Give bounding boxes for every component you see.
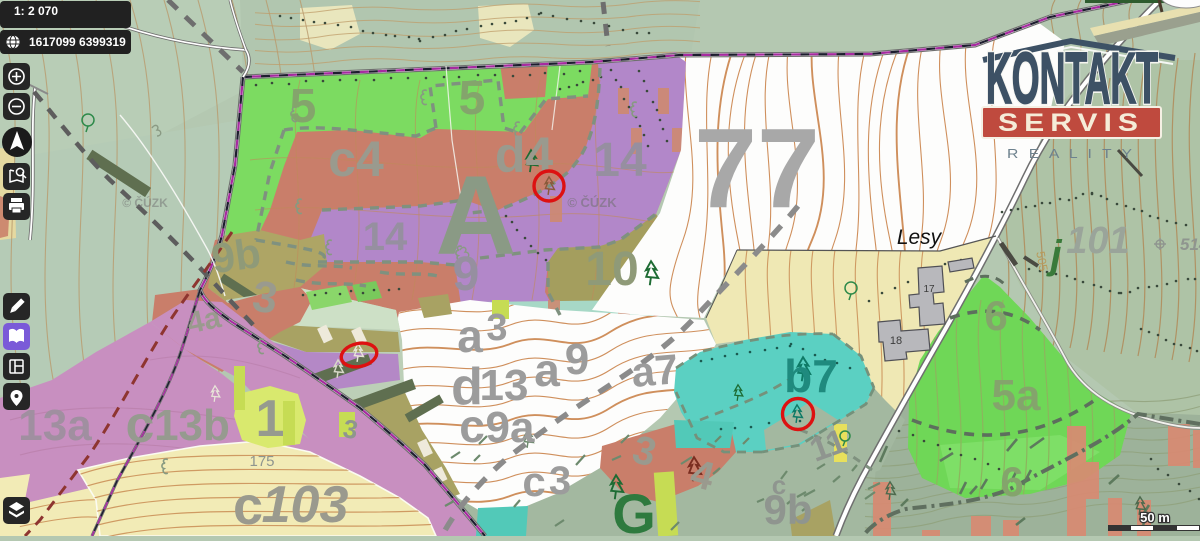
svg-text:13a: 13a: [18, 401, 92, 450]
svg-text:4a: 4a: [184, 301, 224, 340]
svg-text:c4: c4: [328, 131, 384, 187]
svg-text:© ČÚZK: © ČÚZK: [567, 195, 617, 210]
svg-text:1: 1: [256, 390, 285, 448]
svg-text:9: 9: [565, 335, 589, 384]
svg-text:© ČÚZK: © ČÚZK: [122, 195, 168, 210]
svg-text:514: 514: [1180, 235, 1200, 254]
svg-text:Lesy: Lesy: [897, 226, 943, 249]
svg-text:6: 6: [984, 292, 1007, 339]
svg-text:1617099 6399319: 1617099 6399319: [29, 35, 126, 49]
svg-text:c: c: [459, 400, 485, 452]
svg-text:103: 103: [262, 476, 349, 534]
svg-text:13b: 13b: [154, 401, 230, 450]
svg-text:6: 6: [1000, 458, 1023, 505]
svg-text:14: 14: [363, 215, 408, 259]
svg-text:18: 18: [890, 335, 902, 347]
svg-text:a: a: [534, 344, 560, 396]
svg-text:9b: 9b: [763, 486, 812, 533]
svg-text:a: a: [457, 310, 483, 362]
svg-text:R E A L I T Y: R E A L I T Y: [1007, 146, 1135, 161]
svg-text:77: 77: [694, 105, 820, 231]
svg-text:10: 10: [585, 243, 638, 296]
svg-text:a7: a7: [629, 345, 680, 396]
svg-text:175: 175: [249, 453, 274, 470]
svg-text:G: G: [612, 482, 656, 536]
svg-text:5: 5: [459, 72, 486, 125]
svg-text:14: 14: [593, 134, 647, 187]
svg-text:50 m: 50 m: [1140, 510, 1170, 525]
svg-text:c: c: [126, 396, 155, 454]
svg-text:17: 17: [923, 284, 935, 295]
svg-text:9: 9: [453, 248, 480, 301]
svg-text:5a: 5a: [992, 371, 1041, 420]
svg-text:3: 3: [486, 307, 507, 349]
svg-text:9a: 9a: [486, 403, 535, 452]
svg-text:SERVIS: SERVIS: [998, 109, 1144, 137]
svg-text:b7: b7: [784, 350, 838, 402]
svg-text:3: 3: [549, 459, 571, 503]
svg-text:c: c: [233, 476, 263, 536]
svg-text:c: c: [522, 458, 545, 505]
svg-text:5: 5: [290, 80, 317, 133]
svg-text:101: 101: [1066, 220, 1129, 262]
svg-text:1: 2 070: 1: 2 070: [14, 4, 58, 18]
